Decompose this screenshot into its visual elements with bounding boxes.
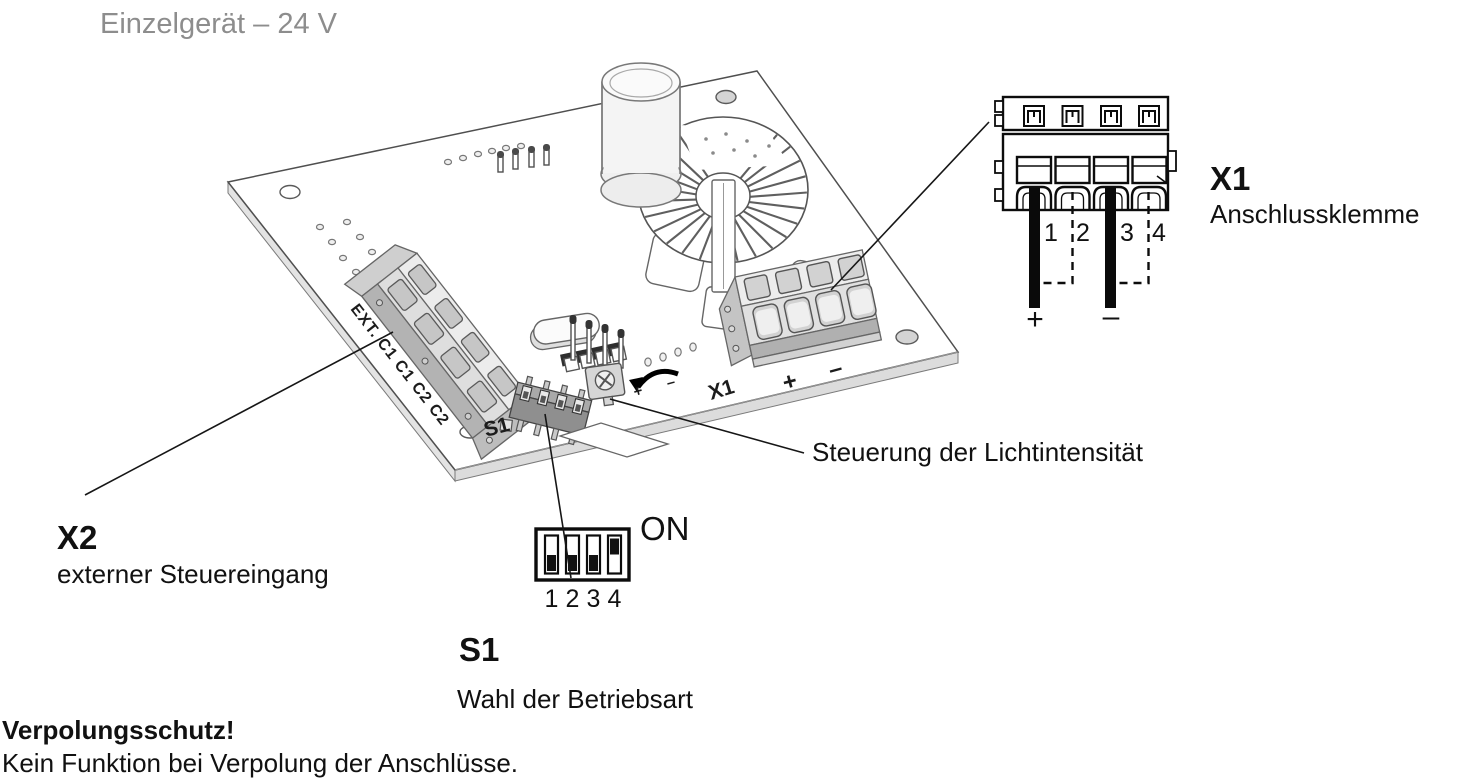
x1-terminal-1: 1 bbox=[1044, 219, 1058, 247]
figure-title: Einzelgerät – 24 V bbox=[100, 8, 338, 40]
mounting-hole bbox=[280, 186, 300, 199]
mounting-hole bbox=[896, 330, 918, 344]
warning-body: Kein Funktion bei Verpolung der Anschlüs… bbox=[2, 748, 518, 778]
dip-num-4: 4 bbox=[608, 585, 622, 613]
dip-num-3: 3 bbox=[587, 585, 601, 613]
x1-wire-plus-label: + bbox=[1026, 303, 1044, 336]
leader-x2 bbox=[85, 332, 393, 495]
x1-label: Anschlussklemme bbox=[1210, 199, 1420, 229]
figure: EXT. C1 C1 C2 C2 S1 X1 + – + – bbox=[0, 0, 1458, 782]
dip-on-label: ON bbox=[640, 510, 690, 547]
leader-x1 bbox=[831, 122, 989, 290]
x1-detail-drawing: 1 2 3 4 + – X1 Anschlussklemme bbox=[995, 97, 1420, 336]
dip-num-2: 2 bbox=[566, 585, 580, 613]
capacitor bbox=[601, 63, 681, 207]
dip-num-1: 1 bbox=[545, 585, 559, 613]
dip-switch-4 bbox=[608, 536, 621, 574]
dip-switch-3 bbox=[587, 536, 600, 574]
x1-terminal-3: 3 bbox=[1120, 219, 1134, 247]
figure-canvas: EXT. C1 C1 C2 C2 S1 X1 + – + – bbox=[0, 0, 1458, 782]
x2-designator: X2 bbox=[57, 519, 97, 556]
warning-heading: Verpolungsschutz! bbox=[2, 715, 235, 745]
x1-designator: X1 bbox=[1210, 160, 1250, 197]
x1-wire-minus-label: – bbox=[1103, 300, 1120, 333]
s1-designator: S1 bbox=[459, 631, 499, 668]
x2-label: externer Steuereingang bbox=[57, 559, 329, 589]
mounting-hole bbox=[716, 91, 736, 104]
s1-label: Wahl der Betriebsart bbox=[457, 684, 694, 714]
s1-detail-drawing: ON 1 2 3 4 S1 Wahl der Betriebsart bbox=[457, 510, 694, 714]
pot-label: Steuerung der Lichtintensität bbox=[812, 437, 1144, 467]
wire-minus bbox=[1105, 188, 1116, 308]
x1-terminal-4: 4 bbox=[1152, 219, 1166, 247]
x1-terminal-2: 2 bbox=[1076, 219, 1090, 247]
wire-plus bbox=[1029, 188, 1040, 308]
dip-switch-1 bbox=[545, 536, 558, 574]
